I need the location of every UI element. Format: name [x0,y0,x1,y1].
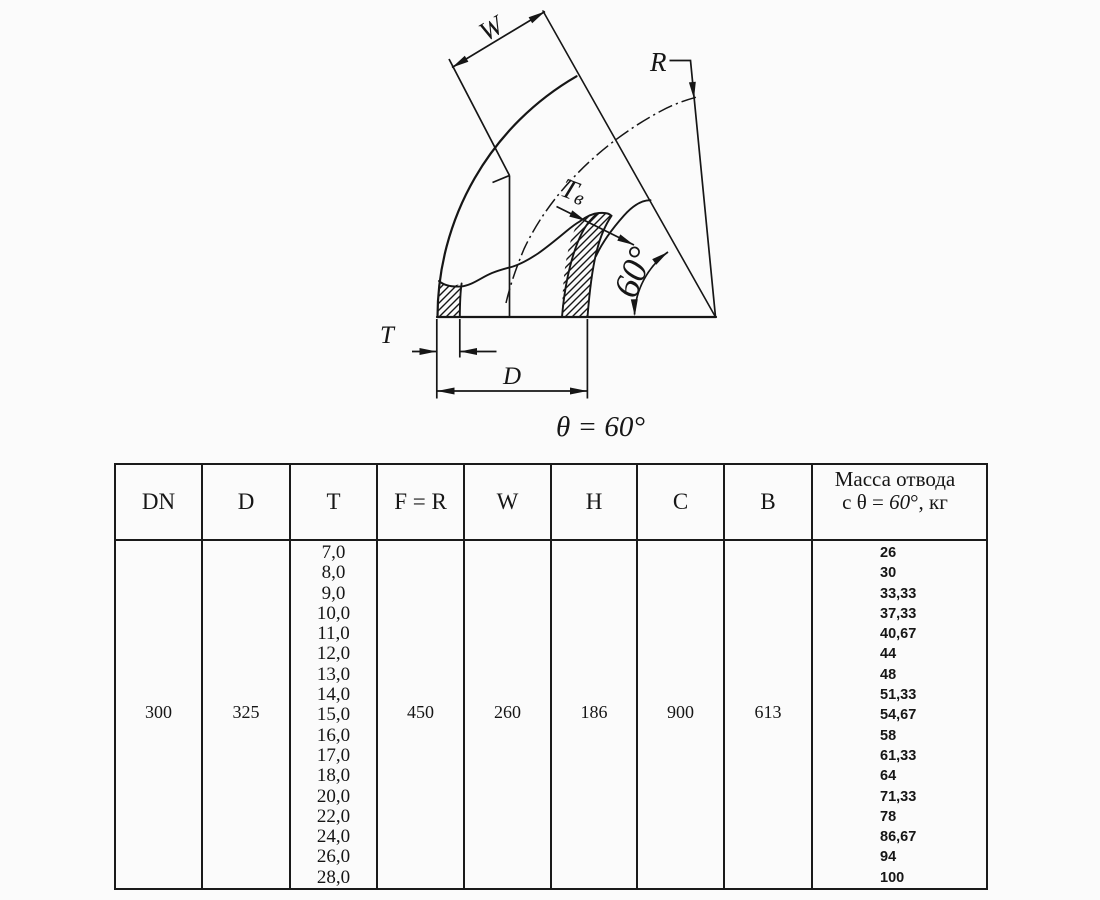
svg-text:θ = 60°: θ = 60° [556,411,645,443]
svg-text:W: W [474,9,511,48]
svg-text:Tв: Tв [556,173,590,211]
svg-text:R: R [649,47,667,77]
svg-text:D: D [502,363,521,390]
svg-text:T: T [380,322,396,349]
svg-text:60°: 60° [605,241,661,303]
